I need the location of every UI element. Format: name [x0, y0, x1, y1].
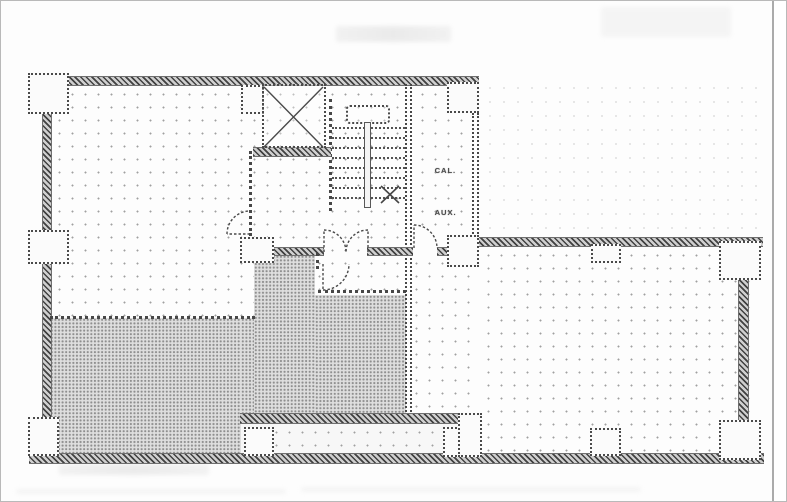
wall-shaded-room-east — [405, 253, 412, 416]
column-wing-southwest — [458, 413, 482, 457]
column-corridor-west — [240, 237, 274, 263]
ghost-text-top-right — [601, 7, 731, 37]
edge-small-room-west — [316, 253, 319, 269]
upper-right-ghost-floor — [483, 81, 761, 235]
column-wing-north-mid — [591, 244, 621, 263]
ghost-text-bottom — [59, 464, 209, 475]
column-wing-northeast — [719, 241, 761, 280]
column-bottom-left — [28, 417, 59, 456]
wall-lobby-west — [249, 151, 252, 236]
column-elevator-west — [241, 85, 264, 114]
room-label-aux: AUX. — [435, 208, 457, 217]
wall-cal-room-east — [472, 113, 479, 237]
ghost-streak-bottom-mid — [301, 487, 641, 492]
column-cal-south — [447, 235, 479, 267]
wall-bottom-main — [29, 453, 764, 464]
ghost-streak-bottom-left — [16, 489, 286, 494]
edge-small-room-bottom — [318, 290, 406, 293]
column-vestibule-west — [244, 427, 274, 456]
scan-right-margin — [774, 1, 787, 502]
ghost-text-top-center — [336, 26, 451, 42]
column-top-left — [28, 73, 69, 114]
column-mid-left — [28, 230, 69, 264]
shaded-room-mid — [254, 255, 315, 414]
scan-page-edge-line — [772, 1, 774, 502]
column-wing-southeast — [719, 420, 761, 460]
entry-vestibule-floor — [241, 422, 465, 453]
stair-center-rail — [364, 122, 371, 208]
wall-left-main — [42, 83, 52, 455]
right-wing-floor — [479, 245, 757, 453]
wall-elevator-sill — [253, 147, 331, 157]
shaded-room-right — [315, 295, 406, 414]
column-wing-south-mid — [590, 428, 621, 456]
wall-vestibule-band — [240, 413, 466, 424]
column-cal-north — [447, 82, 479, 113]
floor-plan-canvas: CAL. AUX. — [0, 0, 787, 502]
edge-shaded-room-top — [50, 316, 255, 319]
wall-stairwell-east — [405, 84, 412, 252]
shaded-room-left — [50, 318, 241, 454]
room-label-cal: CAL. — [435, 166, 457, 175]
elevator-shaft — [262, 84, 326, 148]
gap-room-floor — [407, 253, 479, 413]
wall-wing-right — [738, 278, 749, 422]
wall-corridor-seg2 — [367, 247, 413, 256]
shaded-room-left-step — [241, 318, 254, 414]
